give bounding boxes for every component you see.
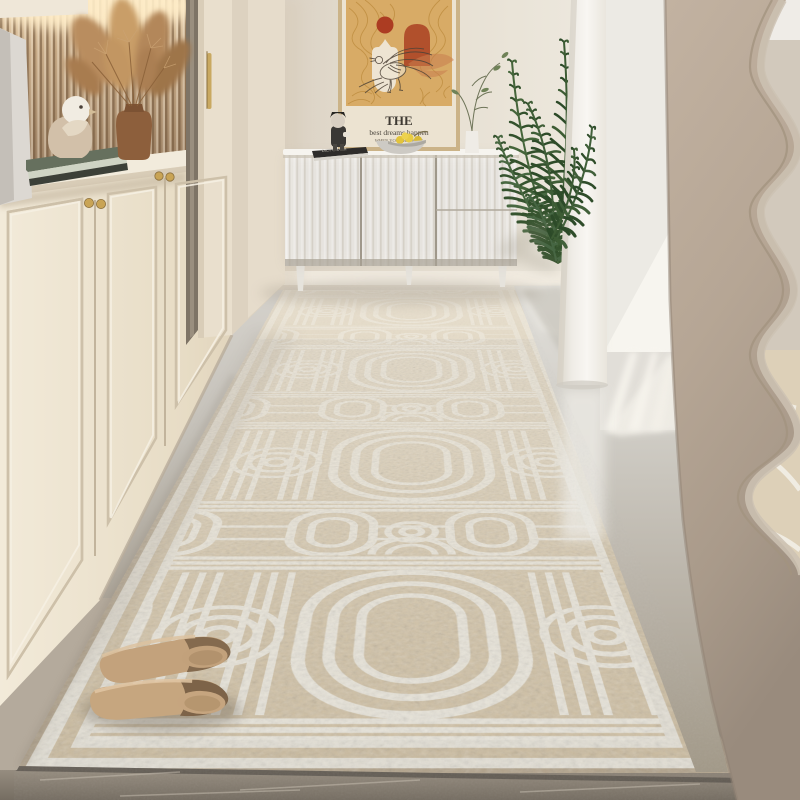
svg-text:THE: THE: [385, 113, 412, 128]
